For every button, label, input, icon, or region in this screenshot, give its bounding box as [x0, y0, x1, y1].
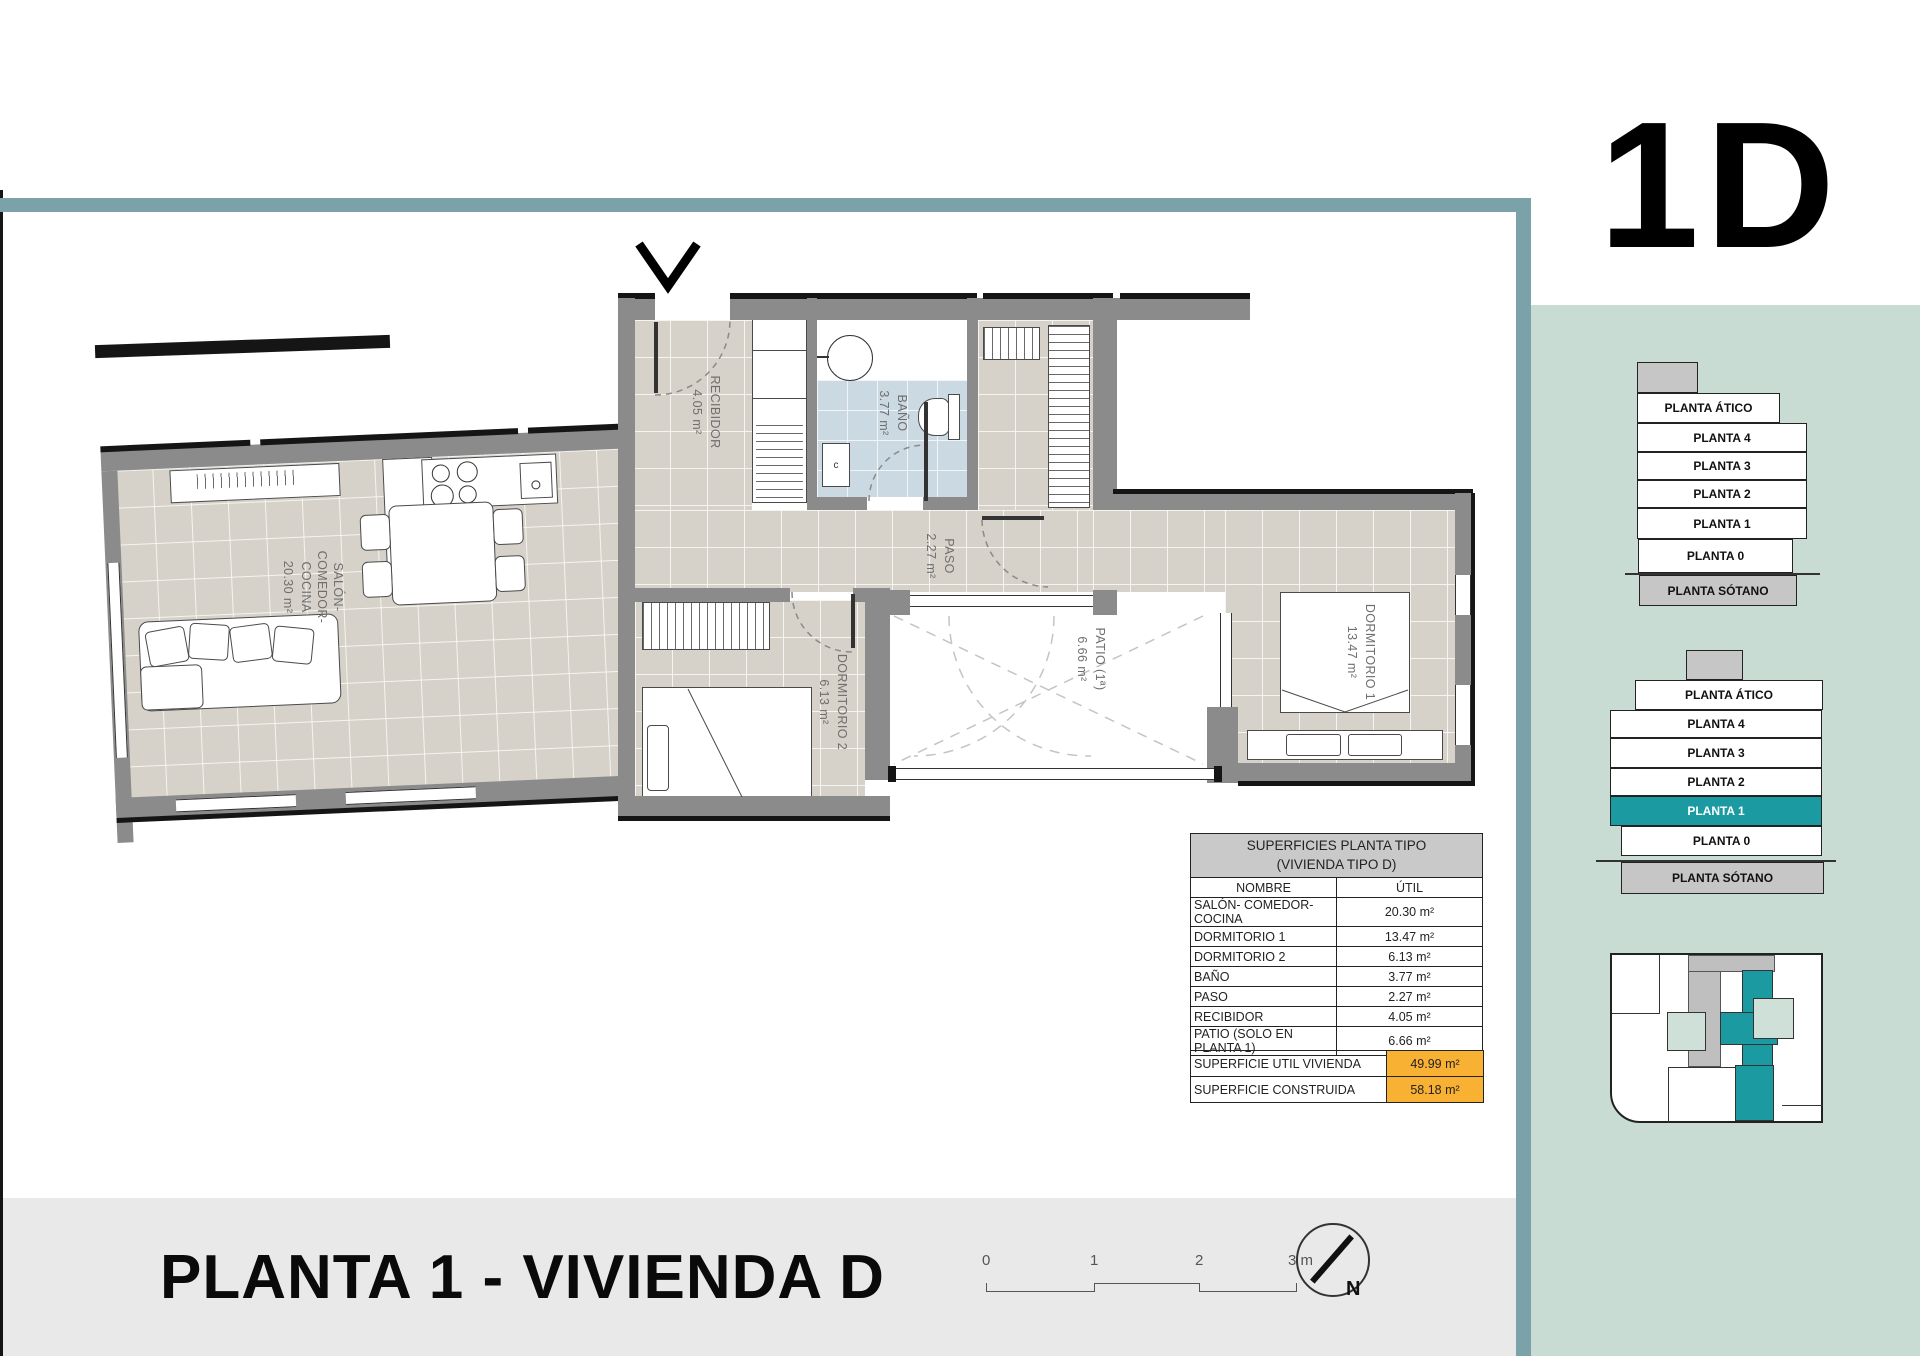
room-area: 2.27 m² — [923, 533, 939, 578]
stack-level: PLANTA 2 — [1610, 768, 1822, 796]
stack-level: PLANTA 0 — [1621, 826, 1822, 856]
room-name: DORMITORIO 1 — [1362, 604, 1378, 700]
stack-level: PLANTA 1 — [1637, 508, 1807, 539]
stack-roof-box — [1637, 362, 1698, 393]
scale-tick-label: 2 — [1195, 1252, 1203, 1269]
unit-divider — [1782, 1105, 1823, 1106]
room-area: 20.30 m² — [280, 561, 296, 614]
stack-level: PLANTA SÓTANO — [1621, 862, 1824, 894]
table-title-line2: (VIVIENDA TIPO D) — [1277, 857, 1397, 872]
room-area: 13.47 m² — [1344, 626, 1360, 679]
table-row: DORMITORIO 113.47 m² — [1191, 927, 1483, 947]
summary-name: SUPERFICIE UTIL VIVIENDA — [1191, 1051, 1387, 1077]
room-label-recibidor: RECIBIDOR 4.05 m² — [676, 352, 736, 472]
table-row: SALÓN- COMEDOR- COCINA20.30 m² — [1191, 898, 1483, 927]
unit-divider — [1668, 1067, 1736, 1068]
table-title: SUPERFICIES PLANTA TIPO (VIVIENDA TIPO D… — [1191, 834, 1483, 878]
scale-segment — [986, 1291, 1094, 1292]
room-name: RECIBIDOR — [707, 375, 723, 448]
summary-name: SUPERFICIE CONSTRUIDA — [1191, 1077, 1387, 1103]
page-left-border — [0, 190, 3, 1356]
teal-band-horizontal — [0, 198, 1531, 212]
row-value: 13.47 m² — [1337, 927, 1483, 947]
unit-divider — [1612, 1013, 1660, 1014]
scale-bar: 0 1 2 3 m — [960, 1230, 1340, 1320]
stack-level-highlighted: PLANTA 1 — [1610, 796, 1822, 826]
row-value: 20.30 m² — [1337, 898, 1483, 927]
room-area: 4.05 m² — [689, 389, 705, 434]
stack-level: PLANTA 2 — [1637, 480, 1807, 508]
stack-level: PLANTA 4 — [1637, 423, 1807, 452]
stack-level: PLANTA 0 — [1638, 539, 1793, 573]
table-title-line1: SUPERFICIES PLANTA TIPO — [1247, 838, 1427, 853]
row-name: RECIBIDOR — [1191, 1007, 1337, 1027]
unit-divider — [1668, 1067, 1669, 1123]
row-name: BAÑO — [1191, 967, 1337, 987]
room-name: PATIO (1ª) — [1092, 627, 1108, 690]
stack-roof-box — [1686, 650, 1743, 680]
room-label-bano: BAÑO 3.77 m² — [868, 353, 918, 473]
areas-table: SUPERFICIES PLANTA TIPO (VIVIENDA TIPO D… — [1190, 833, 1483, 1056]
row-name: SALÓN- COMEDOR- COCINA — [1191, 898, 1337, 927]
unit-divider — [1659, 955, 1660, 1013]
row-name: DORMITORIO 2 — [1191, 947, 1337, 967]
col-header-util: ÚTIL — [1337, 878, 1483, 898]
row-name: PASO — [1191, 987, 1337, 1007]
unit-d-highlight — [1735, 1065, 1774, 1121]
page-title: PLANTA 1 - VIVIENDA D — [160, 1242, 885, 1313]
room-name: PASO — [941, 538, 957, 573]
building-footprint-map — [1610, 953, 1823, 1123]
stack-level: PLANTA ÁTICO — [1635, 680, 1823, 710]
plan-sheet: 1D — [0, 0, 1920, 1356]
room-name: BAÑO — [894, 394, 910, 431]
table-row: PASO2.27 m² — [1191, 987, 1483, 1007]
table-row: SUPERFICIE CONSTRUIDA58.18 m² — [1191, 1077, 1484, 1103]
bed-fold — [688, 689, 742, 797]
patio-area — [1667, 1012, 1706, 1051]
row-value: 6.13 m² — [1337, 947, 1483, 967]
room-label-salon: SALÓN- COMEDOR- COCINA 20.30 m² — [278, 507, 348, 667]
entry-marker — [639, 244, 697, 286]
room-area: 6.66 m² — [1074, 636, 1090, 681]
row-value: 4.05 m² — [1337, 1007, 1483, 1027]
room-label-patio: PATIO (1ª) 6.66 m² — [1066, 599, 1116, 719]
room-area: 6.13 m² — [816, 679, 832, 724]
patio-area — [1753, 998, 1794, 1039]
row-value: 3.77 m² — [1337, 967, 1483, 987]
stack-level: PLANTA 4 — [1610, 710, 1822, 738]
teal-band-vertical — [1516, 198, 1531, 1356]
stack-level: PLANTA 3 — [1637, 452, 1807, 480]
row-name: DORMITORIO 1 — [1191, 927, 1337, 947]
room-label-dormitorio2: DORMITORIO 2 6.13 m² — [808, 642, 858, 762]
stack-level: PLANTA ÁTICO — [1637, 393, 1780, 423]
room-area: 3.77 m² — [876, 390, 892, 435]
room-label-paso: PASO 2.27 m² — [915, 496, 965, 616]
summary-value: 49.99 m² — [1387, 1051, 1484, 1077]
scale-segment — [1094, 1283, 1199, 1284]
unit-code: 1D — [1560, 70, 1880, 300]
scale-tick-label: 1 — [1090, 1252, 1098, 1269]
stack-level: PLANTA SÓTANO — [1639, 575, 1797, 606]
room-name: DORMITORIO 2 — [834, 654, 850, 750]
floor-plan: c — [90, 240, 1500, 840]
room-label-dormitorio1: DORMITORIO 1 13.47 m² — [1336, 592, 1386, 712]
room-name: SALÓN- COMEDOR- COCINA — [298, 551, 347, 624]
door-arc — [982, 520, 1048, 587]
scale-segment — [1199, 1291, 1296, 1292]
scale-tick — [1094, 1283, 1095, 1292]
patio-door-arc — [914, 616, 1054, 756]
scale-tick — [1296, 1283, 1297, 1292]
table-row: DORMITORIO 26.13 m² — [1191, 947, 1483, 967]
north-label: N — [1346, 1278, 1360, 1301]
stack-level: PLANTA 3 — [1610, 738, 1822, 768]
table-row: RECIBIDOR4.05 m² — [1191, 1007, 1483, 1027]
summary-table: SUPERFICIE UTIL VIVIENDA49.99 m² SUPERFI… — [1190, 1050, 1484, 1103]
col-header-nombre: NOMBRE — [1191, 878, 1337, 898]
row-value: 2.27 m² — [1337, 987, 1483, 1007]
table-row: SUPERFICIE UTIL VIVIENDA49.99 m² — [1191, 1051, 1484, 1077]
scale-tick-label: 0 — [982, 1252, 990, 1269]
table-row: BAÑO3.77 m² — [1191, 967, 1483, 987]
summary-value: 58.18 m² — [1387, 1077, 1484, 1103]
